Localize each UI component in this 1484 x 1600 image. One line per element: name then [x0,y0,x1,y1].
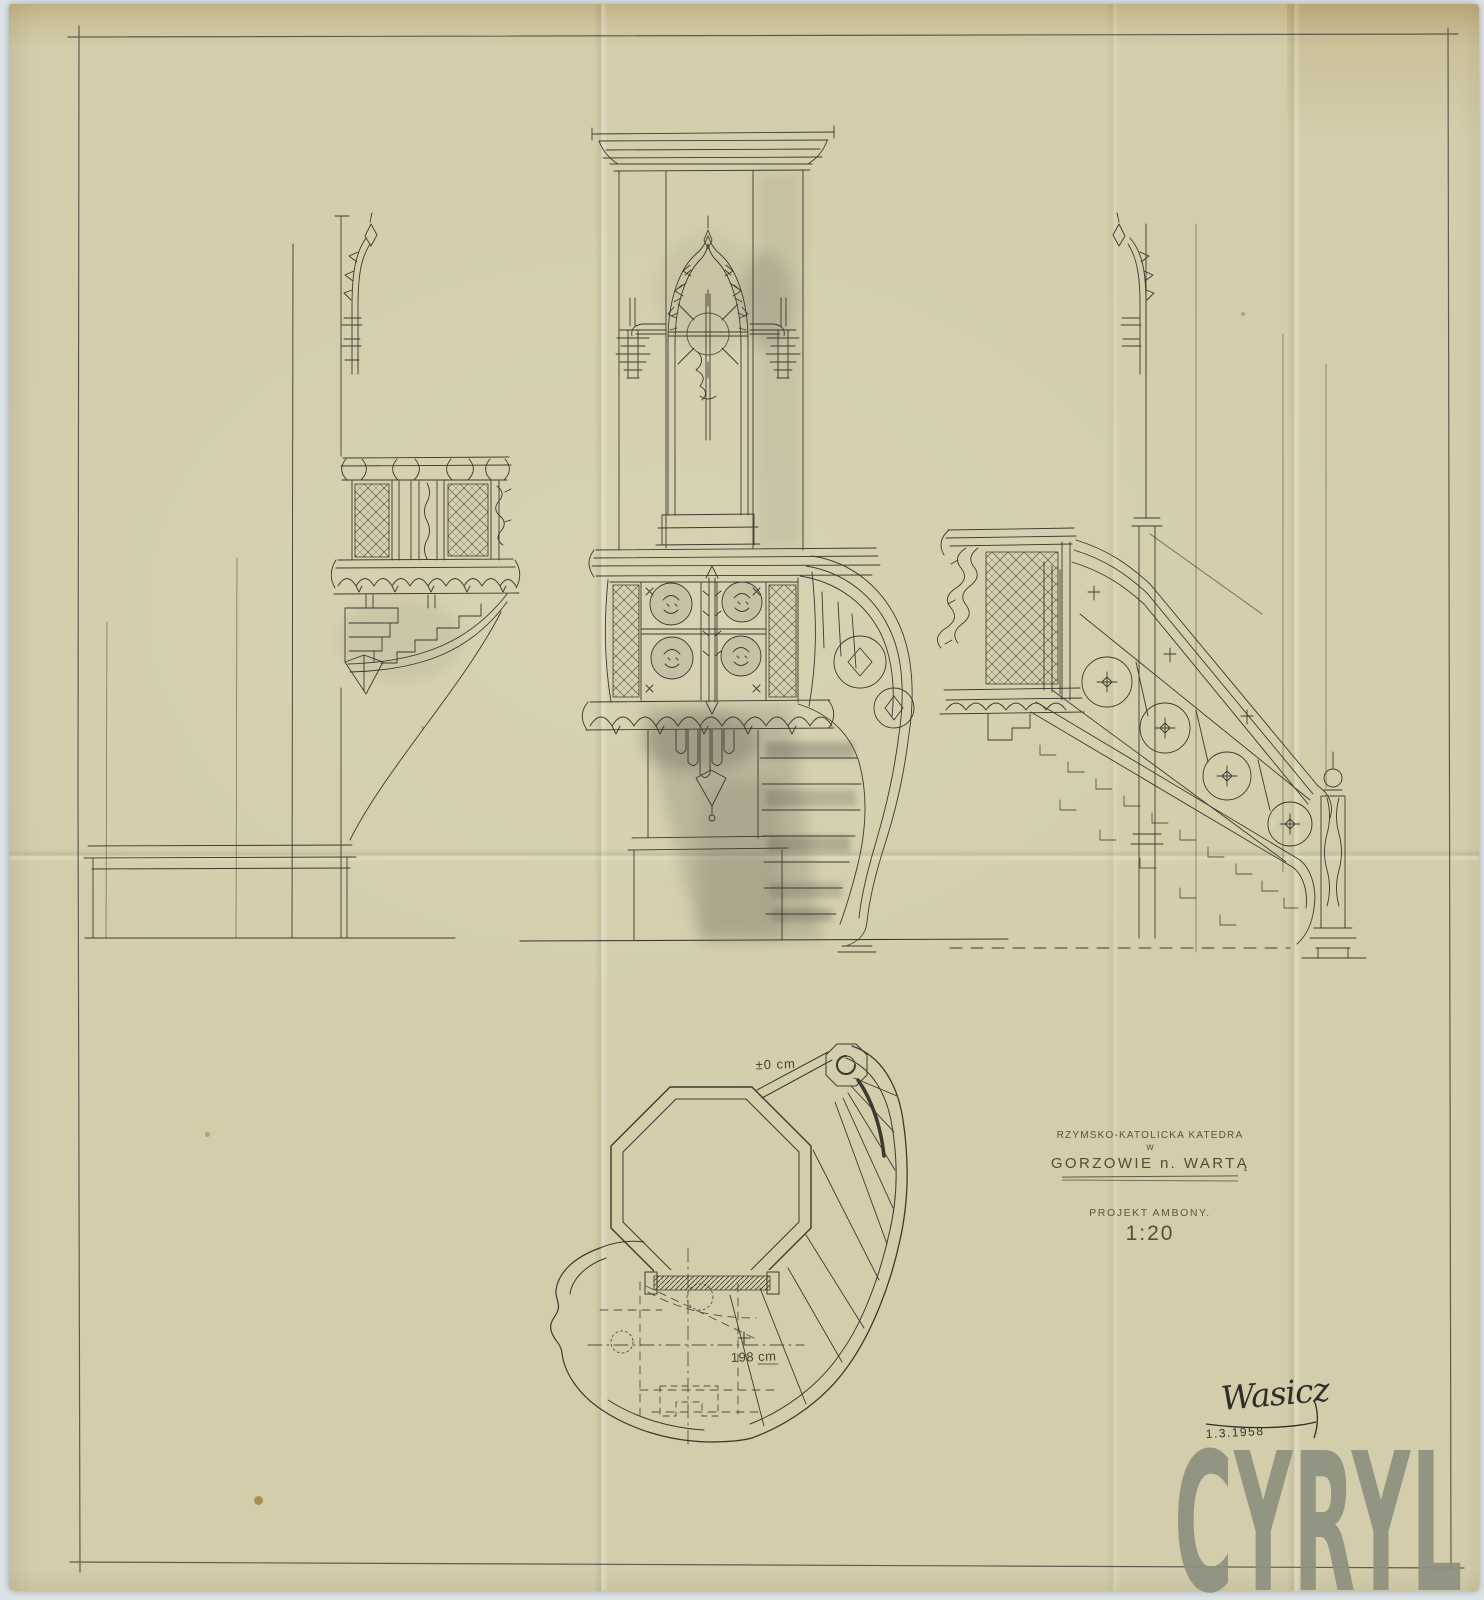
watermark-text: CYRYL [1174,1411,1463,1600]
scale-label: 1:20 [1034,1222,1266,1246]
pinnacle-left [342,213,377,374]
cyryl-watermark: CYRYL [1174,1411,1463,1600]
pillar-capital [592,126,834,171]
relief-medallions [646,582,762,692]
scanned-drawing-page: { "palette": { "background": "#dce3e6", … [0,0,1484,1600]
plan-level-zero-label: ±0 cm [755,1056,796,1072]
title-line-cathedral: RZYMSKO-KATOLICKA KATEDRA [1034,1130,1266,1142]
floor-plan-view: ±0 cm + 198 cm [551,1044,908,1448]
plan-treads [730,1078,897,1426]
title-block: RZYMSKO-KATOLICKA KATEDRA w GORZOWIE n. … [1034,1130,1266,1246]
pulpit-basket-side [331,457,520,594]
newel-post [1302,752,1366,958]
ink-drawing: ±0 cm + 198 cm Wasicz 1.3.1958 CYRYL [0,0,1484,1600]
candle-sconce-left [616,298,666,378]
title-underline [1062,1176,1238,1181]
pinnacle-right [1113,213,1154,374]
stair-railing [1031,540,1332,944]
right-elevation-view [937,213,1366,958]
pulpit-basket-right-side [937,528,1084,740]
title-line-w: w [1034,1142,1266,1153]
hidden-steps-dashes [1040,745,1298,925]
plan-level-plus-label: 198 cm [731,1348,777,1365]
project-label: PROJEKT AMBONY. [1034,1207,1266,1219]
left-elevation-view [84,213,520,938]
title-line-city: GORZOWIE n. WARTĄ [1034,1155,1266,1172]
front-elevation-view [520,126,1008,952]
